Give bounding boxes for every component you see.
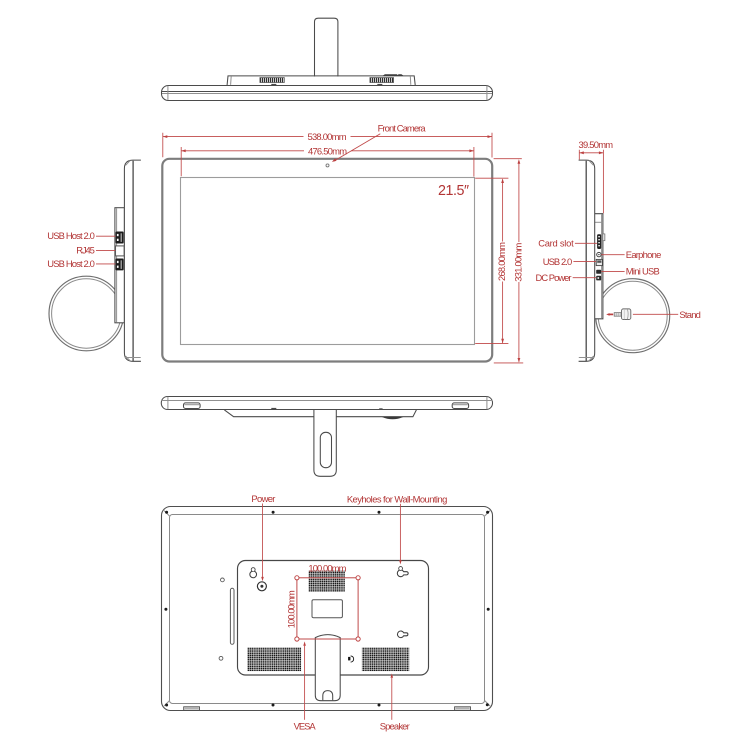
svg-text:331.00mm: 331.00mm bbox=[513, 243, 524, 282]
svg-text:268.00mm: 268.00mm bbox=[496, 242, 507, 281]
svg-text:Earphone: Earphone bbox=[626, 249, 662, 260]
svg-text:USB 2.0: USB 2.0 bbox=[543, 256, 573, 267]
svg-text:39.50mm: 39.50mm bbox=[579, 139, 614, 150]
svg-text:VESA: VESA bbox=[294, 720, 317, 731]
svg-text:21.5″: 21.5″ bbox=[438, 183, 469, 199]
svg-text:100.00mm: 100.00mm bbox=[286, 590, 297, 628]
svg-text:USB Host 2.0: USB Host 2.0 bbox=[47, 258, 95, 269]
svg-text:RJ45: RJ45 bbox=[76, 245, 95, 256]
svg-text:Stand: Stand bbox=[679, 309, 701, 320]
svg-text:Speaker: Speaker bbox=[380, 721, 410, 732]
svg-text:100.00mm: 100.00mm bbox=[308, 562, 346, 573]
svg-text:Card slot: Card slot bbox=[538, 238, 574, 249]
svg-text:Mini USB: Mini USB bbox=[626, 265, 660, 276]
svg-text:DC Power: DC Power bbox=[536, 272, 572, 283]
svg-text:Front Camera: Front Camera bbox=[378, 123, 427, 134]
svg-text:Power: Power bbox=[251, 493, 275, 504]
svg-text:538.00mm: 538.00mm bbox=[308, 131, 347, 142]
svg-text:476.50mm: 476.50mm bbox=[308, 146, 347, 157]
svg-text:Keyholes for Wall-Mounting: Keyholes for Wall-Mounting bbox=[347, 493, 448, 504]
svg-text:USB Host 2.0: USB Host 2.0 bbox=[47, 230, 95, 241]
